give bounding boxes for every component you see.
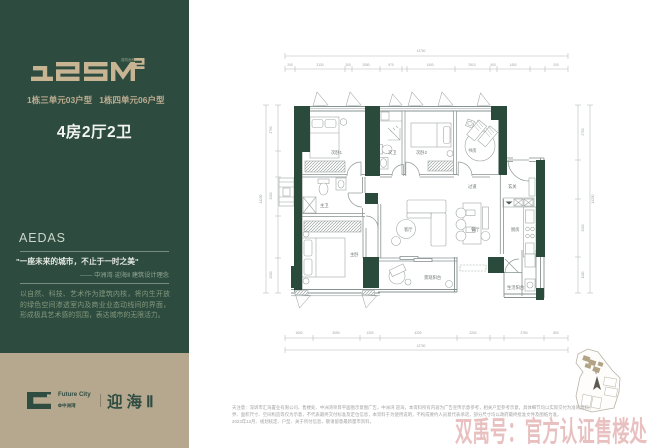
- svg-text:次卧2: 次卧2: [416, 149, 428, 156]
- svg-text:次卫: 次卫: [388, 149, 397, 156]
- svg-text:1400: 1400: [426, 63, 433, 67]
- svg-text:14230: 14230: [591, 194, 595, 203]
- svg-text:过道: 过道: [468, 183, 477, 190]
- svg-text:厨房: 厨房: [511, 226, 520, 233]
- svg-text:800: 800: [553, 331, 559, 335]
- svg-text:1400: 1400: [509, 63, 516, 67]
- svg-text:2750: 2750: [520, 331, 527, 335]
- svg-text:2750: 2750: [581, 128, 585, 135]
- svg-text:2200: 2200: [469, 331, 476, 335]
- svg-text:1300: 1300: [366, 331, 373, 335]
- svg-text:200: 200: [345, 63, 351, 67]
- svg-text:240: 240: [287, 63, 293, 67]
- svg-text:12700: 12700: [417, 344, 426, 348]
- svg-text:餐厅: 餐厅: [471, 226, 480, 233]
- svg-text:玄关: 玄关: [508, 183, 517, 190]
- svg-text:3050: 3050: [332, 331, 339, 335]
- svg-text:主卫: 主卫: [320, 202, 329, 208]
- svg-text:970: 970: [388, 63, 394, 67]
- svg-text:3130: 3130: [316, 63, 323, 67]
- svg-text:2900: 2900: [269, 192, 273, 199]
- svg-text:书房: 书房: [468, 147, 477, 154]
- svg-text:200: 200: [553, 63, 559, 67]
- svg-text:1600: 1600: [295, 331, 302, 335]
- svg-text:14230: 14230: [259, 194, 263, 203]
- svg-text:2910: 2910: [468, 63, 475, 67]
- svg-text:12700: 12700: [417, 49, 426, 53]
- svg-text:400: 400: [490, 63, 496, 67]
- svg-text:2900: 2900: [581, 224, 585, 231]
- svg-text:双禹号：官方认证售楼处: 双禹号：官方认证售楼处: [455, 415, 647, 447]
- svg-text:天注意：深圳市汇海置业有限公司、售楼处、中洲湾项目平面图示意: 天注意：深圳市汇海置业有限公司、售楼处、中洲湾项目平面图示意图广告，中洲湾 迎海…: [232, 404, 593, 411]
- svg-text:2750: 2750: [269, 126, 273, 133]
- svg-text:1100: 1100: [581, 271, 585, 278]
- svg-text:主卧: 主卧: [350, 251, 359, 258]
- svg-text:2080: 2080: [362, 63, 369, 67]
- svg-text:景观阳台: 景观阳台: [424, 274, 441, 281]
- svg-text:客厅: 客厅: [404, 226, 413, 233]
- svg-text:生活阳台: 生活阳台: [507, 284, 524, 291]
- svg-text:2023年12月、规划核定、户型、关于所付信息，敬请留意最新: 2023年12月、规划核定、户型、关于所付信息，敬请留意最新量市资料。: [232, 418, 374, 425]
- svg-text:2900: 2900: [269, 271, 273, 278]
- svg-text:次卧1: 次卧1: [331, 149, 343, 156]
- svg-text:4230: 4230: [414, 331, 421, 335]
